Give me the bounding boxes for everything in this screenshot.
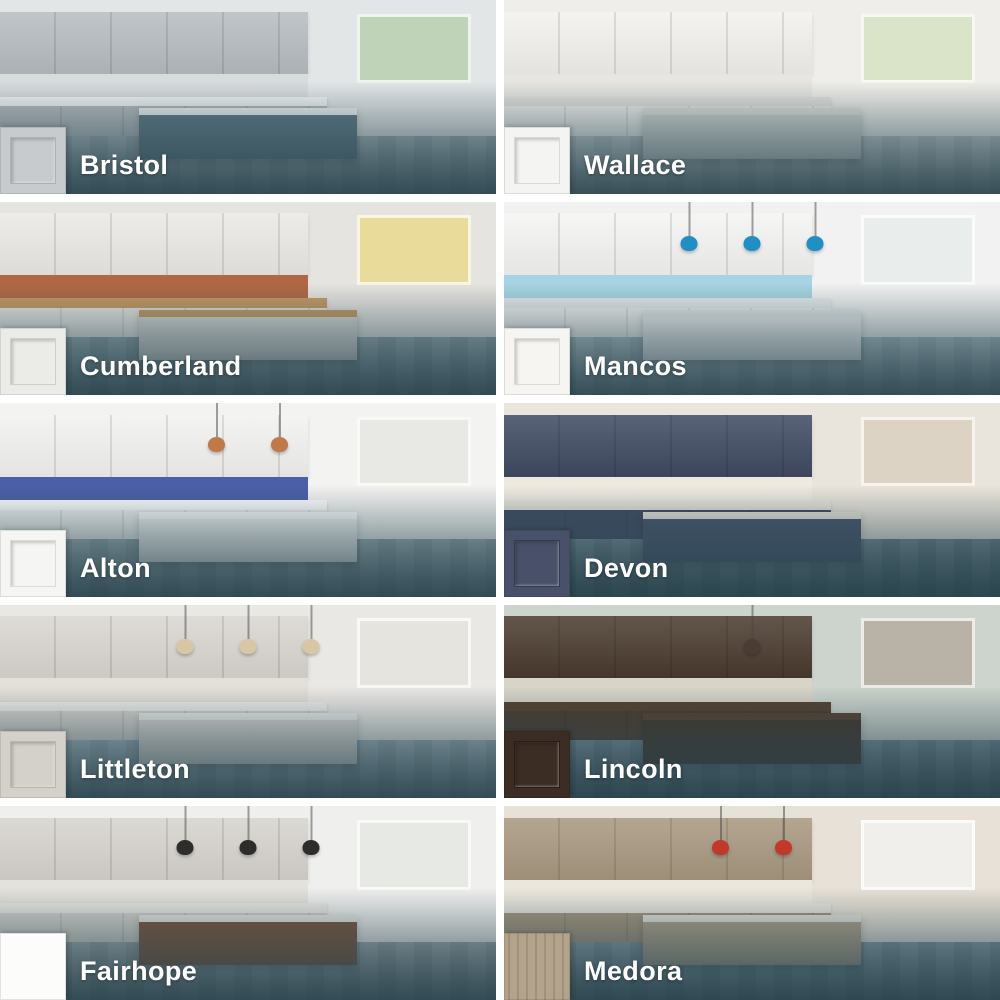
style-name: Medora xyxy=(584,956,682,987)
style-card-mancos[interactable]: Mancos xyxy=(504,202,1000,396)
label-gradient-overlay xyxy=(0,888,496,1000)
door-swatch xyxy=(504,328,570,395)
door-swatch xyxy=(504,127,570,194)
pendant-lights xyxy=(712,806,792,855)
label-gradient-overlay xyxy=(504,283,1000,395)
style-card-lincoln[interactable]: Lincoln xyxy=(504,605,1000,799)
door-swatch xyxy=(504,530,570,597)
window-shape xyxy=(357,14,471,84)
style-card-devon[interactable]: Devon xyxy=(504,403,1000,597)
label-gradient-overlay xyxy=(504,686,1000,798)
label-gradient-overlay xyxy=(504,888,1000,1000)
style-card-wallace[interactable]: Wallace xyxy=(504,0,1000,194)
window-shape xyxy=(861,14,975,84)
style-card-medora[interactable]: Medora xyxy=(504,806,1000,1000)
door-swatch xyxy=(0,328,66,395)
label-gradient-overlay xyxy=(0,283,496,395)
label-gradient-overlay xyxy=(504,485,1000,597)
pendant-lights xyxy=(681,202,824,251)
window-shape xyxy=(861,417,975,487)
label-gradient-overlay xyxy=(0,686,496,798)
style-card-littleton[interactable]: Littleton xyxy=(0,605,496,799)
door-swatch xyxy=(0,731,66,798)
window-shape xyxy=(861,820,975,890)
style-card-cumberland[interactable]: Cumberland xyxy=(0,202,496,396)
pendant-lights xyxy=(177,605,320,654)
window-shape xyxy=(861,618,975,688)
label-gradient-overlay xyxy=(0,81,496,193)
window-shape xyxy=(357,618,471,688)
pendant-lights xyxy=(208,403,288,452)
window-shape xyxy=(861,215,975,285)
style-name: Mancos xyxy=(584,351,687,382)
pendant-lights xyxy=(744,605,761,654)
style-card-bristol[interactable]: Bristol xyxy=(0,0,496,194)
style-name: Devon xyxy=(584,553,669,584)
style-grid: Bristol Wallace Cumberland xyxy=(0,0,1000,1000)
door-swatch xyxy=(0,530,66,597)
style-name: Fairhope xyxy=(80,956,197,987)
window-shape xyxy=(357,417,471,487)
door-swatch xyxy=(504,731,570,798)
style-name: Wallace xyxy=(584,150,686,181)
style-name: Littleton xyxy=(80,754,190,785)
style-name: Alton xyxy=(80,553,151,584)
style-name: Cumberland xyxy=(80,351,242,382)
window-shape xyxy=(357,215,471,285)
style-card-alton[interactable]: Alton xyxy=(0,403,496,597)
door-swatch xyxy=(0,933,66,1000)
style-card-fairhope[interactable]: Fairhope xyxy=(0,806,496,1000)
door-swatch xyxy=(0,127,66,194)
pendant-lights xyxy=(177,806,320,855)
label-gradient-overlay xyxy=(0,485,496,597)
door-swatch xyxy=(504,933,570,1000)
style-name: Lincoln xyxy=(584,754,683,785)
window-shape xyxy=(357,820,471,890)
style-name: Bristol xyxy=(80,150,168,181)
label-gradient-overlay xyxy=(504,81,1000,193)
